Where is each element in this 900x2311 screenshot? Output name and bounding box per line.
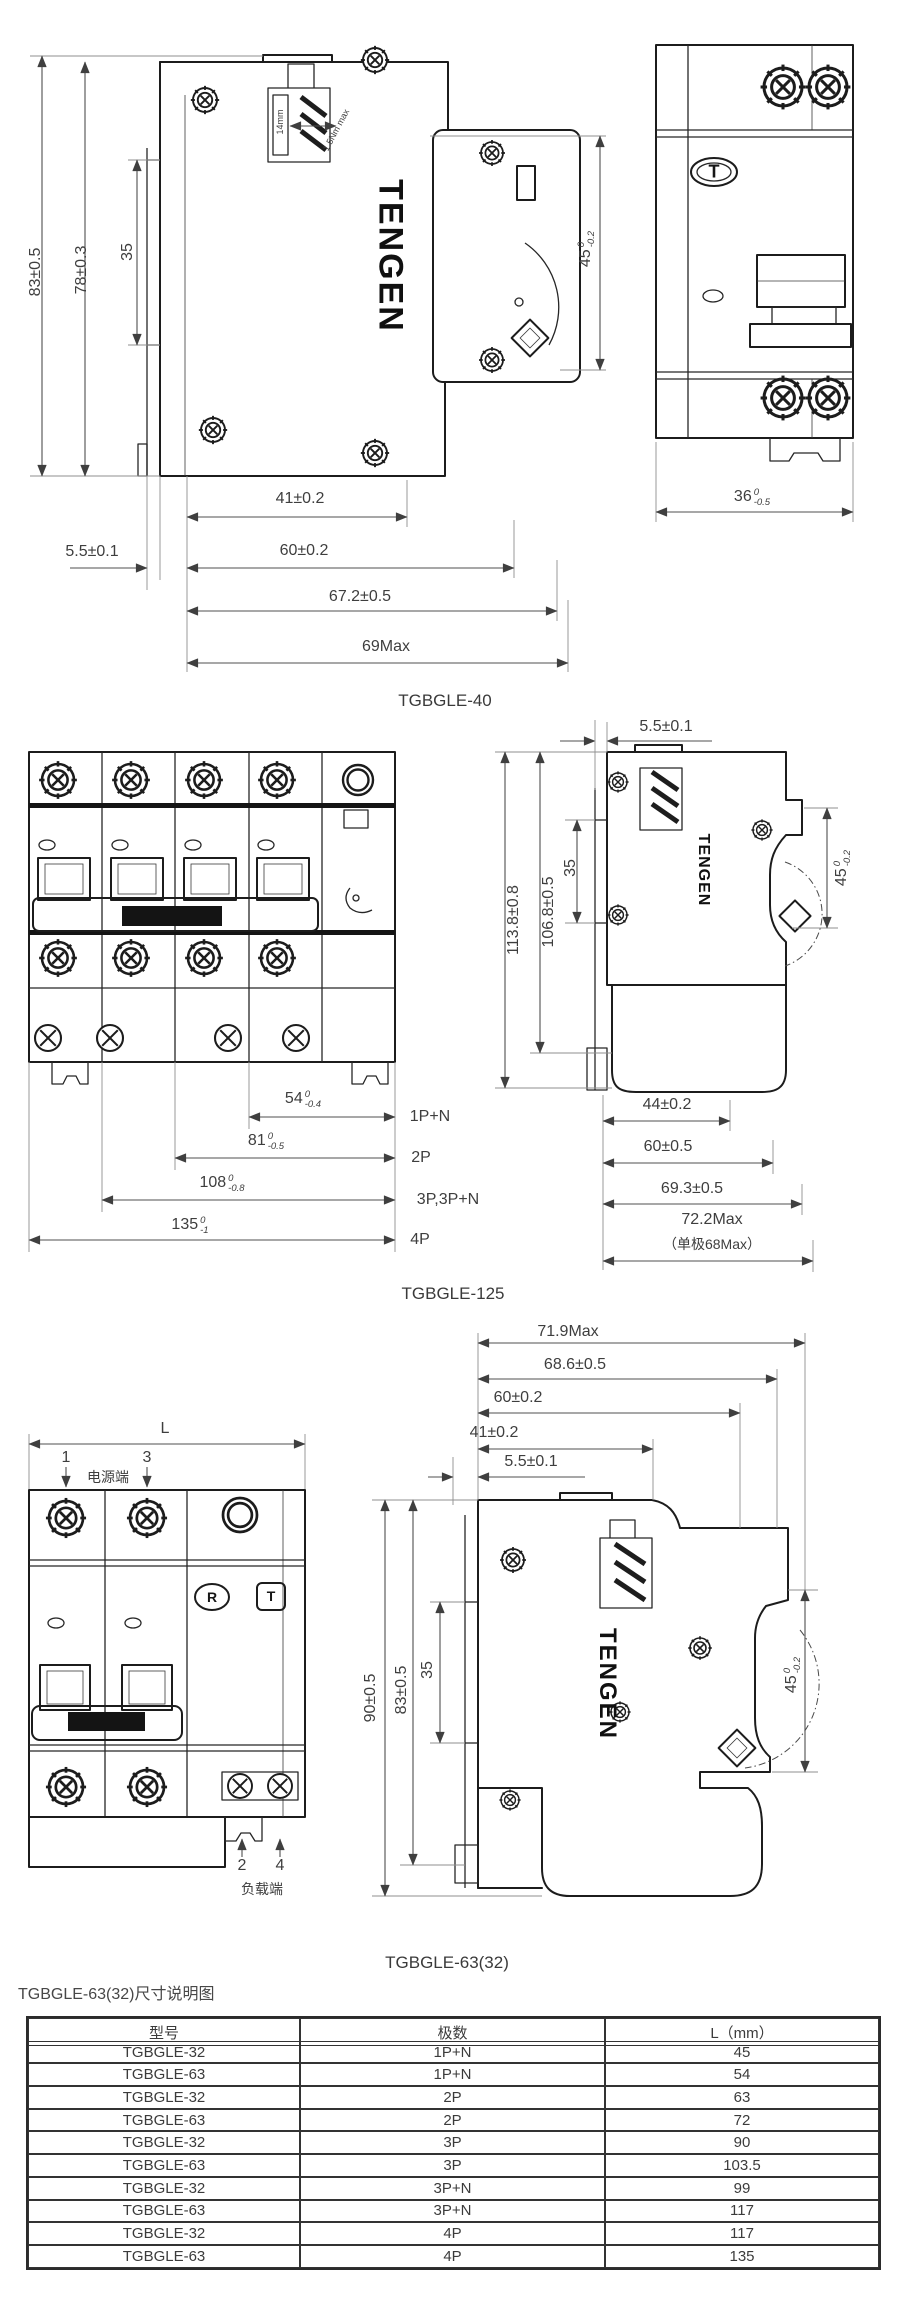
fig2-pole-label-4p: 4P [410,1231,430,1249]
fig1-terminal-capacity-note: 14mm [275,109,285,134]
fig3-test-button-label: T [267,1588,276,1604]
table-row: TGBGLE-32 [28,2041,300,2064]
fig2-dim-din-35: 35 [562,859,580,877]
fig2-dim-width-44: 44±0.2 [643,1096,692,1114]
fig3-dim-width-60: 60±0.2 [494,1389,543,1407]
fig1-dim-width-41: 41±0.2 [276,490,325,508]
fig3-dim-width-719max: 71.9Max [537,1323,598,1341]
fig2-dim-width-722max: 72.2Max [681,1211,742,1229]
table-row: 3P+N [300,2177,605,2200]
table-heading: TGBGLE-63(32)尺寸说明图 [18,1980,215,2004]
fig2-dim-width-1pn: 54 0-0.4 [285,1089,321,1109]
table-row: 99 [605,2177,879,2200]
table-row: 1P+N [300,2063,605,2086]
fig2-pole-label-1pn: 1P+N [410,1108,450,1126]
fig2-dim-height-1138: 113.8±0.8 [505,885,523,955]
fig3-dim-rail-55: 5.5±0.1 [504,1453,557,1471]
fig2-dim-rail-55: 5.5±0.1 [639,718,692,736]
table-row: 3P [300,2154,605,2177]
table-row: 3P+N [300,2200,605,2223]
fig1-caption: TGBGLE-40 [398,691,492,711]
brand-logo: TENGEN [694,834,712,907]
table-row: 135 [605,2245,879,2268]
table-row: 45 [605,2041,879,2064]
fig3-dim-din-35: 35 [419,1661,437,1679]
fig3-terminal-3-label: 3 [143,1449,152,1467]
table-row: 90 [605,2131,879,2154]
table-row: 2P [300,2086,605,2109]
fig1-dim-width-672: 67.2±0.5 [329,588,391,606]
fig2-dim-single-pole-68max: （单极68Max） [663,1234,761,1254]
brand-logo: TENGEN [371,179,410,333]
fig3-side-view [372,1333,819,1896]
fig3-front-view [29,1434,305,1867]
fig3-load-side-label: 负载端 [241,1879,283,1899]
fig1-dim-width-36: 36 0-0.5 [734,487,770,507]
fig2-dim-width-3p: 108 0-0.8 [199,1173,244,1193]
fig3-dim-width-41: 41±0.2 [470,1424,519,1442]
dimension-table: 型号 极数 L（mm） TGBGLE-32 1P+N 45 TGBGLE-63 … [26,2016,881,2270]
fig2-caption: TGBGLE-125 [402,1284,505,1304]
fig2-dim-width-2p: 81 0-0.5 [248,1131,284,1151]
table-row: 117 [605,2222,879,2245]
fig2-dim-width-693: 69.3±0.5 [661,1180,723,1198]
fig2-dim-width-4p: 135 0-1 [171,1215,208,1235]
brand-logo: TENGEN [593,1628,621,1740]
table-row: TGBGLE-63 [28,2200,300,2223]
fig3-handle [32,1665,182,1740]
table-row: TGBGLE-63 [28,2245,300,2268]
table-row: TGBGLE-32 [28,2222,300,2245]
fig2-dim-depth-45: 45 0-0.2 [832,850,852,886]
fig1-dim-height-78: 78±0.3 [73,246,91,295]
table-row: 117 [605,2200,879,2223]
table-row: 54 [605,2063,879,2086]
fig2-pole-label-2p: 2P [411,1149,431,1167]
fig1-front-view [656,45,853,522]
table-row: TGBGLE-63 [28,2154,300,2177]
table-row: TGBGLE-32 [28,2177,300,2200]
fig3-dim-width-L: L [161,1420,170,1438]
fig3-dim-height-83: 83±0.5 [393,1666,411,1715]
table-row: 2P [300,2109,605,2132]
fig2-dim-width-60: 60±0.5 [644,1138,693,1156]
dimension-drawing-sheet: 83±0.5 78±0.3 35 14mm 1.5Nm max TENGEN 4… [0,0,900,2311]
fig1-handle [750,255,851,347]
table-row: 4P [300,2222,605,2245]
fig3-dim-width-686: 68.6±0.5 [544,1356,606,1374]
table-row: 103.5 [605,2154,879,2177]
fig3-terminal-4-label: 4 [276,1857,285,1875]
fig1-dim-width-60: 60±0.2 [280,542,329,560]
fig2-dim-height-1068: 106.8±0.5 [540,876,558,947]
fig1-dim-din-35: 35 [119,243,137,261]
table-row: TGBGLE-63 [28,2109,300,2132]
fig3-terminal-1-label: 1 [62,1449,71,1467]
table-row: 3P [300,2131,605,2154]
table-row: 63 [605,2086,879,2109]
fig3-terminal-2-label: 2 [238,1857,247,1875]
table-row: TGBGLE-32 [28,2086,300,2109]
fig3-power-side-label: 电源端 [87,1467,129,1487]
fig1-side-view [30,46,606,672]
table-row: 4P [300,2245,605,2268]
fig3-dim-height-90: 90±0.5 [362,1674,380,1723]
fig1-dim-depth-45: 45 0-0.2 [576,231,596,267]
fig2-pole-label-3p: 3P,3P+N [417,1191,479,1209]
table-row: 1P+N [300,2041,605,2064]
table-row: TGBGLE-63 [28,2063,300,2086]
fig1-dim-rail-55: 5.5±0.1 [65,543,118,561]
fig3-reset-button-label: R [207,1589,217,1605]
table-row: 72 [605,2109,879,2132]
fig3-dim-depth-45: 45 0-0.2 [782,1657,802,1693]
table-row: TGBGLE-32 [28,2131,300,2154]
fig1-dim-width-69max: 69Max [362,638,410,656]
fig1-test-button-label: T [709,162,720,183]
fig3-caption: TGBGLE-63(32) [385,1953,509,1973]
fig1-dim-height-83: 83±0.5 [27,248,45,297]
